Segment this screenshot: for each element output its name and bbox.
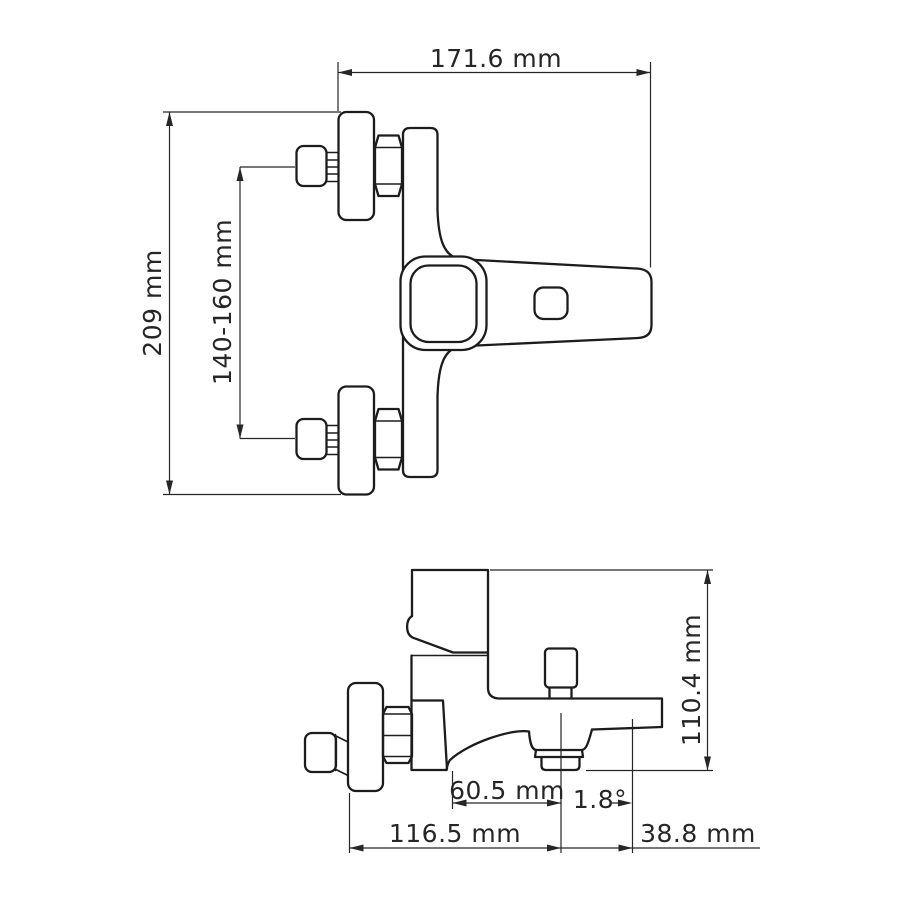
- handle-button: [535, 288, 568, 320]
- arrowhead: [338, 69, 352, 76]
- side-view: 110.4 mm 60.5 mm 1.8° 116.5 mm 38.8 mm: [305, 570, 760, 853]
- diverter-neck: [550, 688, 572, 699]
- spout-tip-bottom: [592, 727, 662, 730]
- thread-lines: [327, 433, 339, 447]
- arrowhead: [704, 570, 711, 584]
- arrowhead: [166, 481, 173, 495]
- dim-label-front-height: 209 mm: [138, 249, 167, 356]
- front-view: 171.6 mm 209 mm 140-160 mm: [138, 44, 652, 495]
- hex-nut-facets: [375, 148, 402, 185]
- escutcheon: [339, 112, 375, 220]
- arrowhead: [619, 845, 633, 852]
- ext-lines-height: [163, 112, 341, 495]
- arrowhead: [704, 757, 711, 771]
- front-body: [401, 128, 652, 477]
- ext-lines-mount-spacing: [240, 167, 295, 439]
- eccentric-cylinder: [297, 419, 327, 459]
- escutcheon: [339, 387, 375, 495]
- arrowhead: [166, 112, 173, 126]
- dim-label-side-height: 110.4 mm: [677, 614, 706, 746]
- front-bottom-mount: [297, 387, 403, 495]
- drawing-canvas: 171.6 mm 209 mm 140-160 mm: [0, 0, 900, 900]
- dim-label-spout-offset: 60.5 mm: [449, 776, 565, 805]
- front-top-mount: [297, 112, 403, 220]
- faucet-dimension-drawing: 171.6 mm 209 mm 140-160 mm: [0, 0, 900, 900]
- control-knob-outer: [401, 257, 487, 351]
- eccentric-cylinder: [297, 146, 327, 186]
- escutcheon: [348, 683, 383, 791]
- dim-label-mount-spacing: 140-160 mm: [208, 219, 237, 385]
- arrowhead: [237, 167, 244, 181]
- eccentric-connector: [305, 733, 336, 772]
- body-lower-left: [412, 656, 447, 771]
- arrowhead: [350, 845, 364, 852]
- hex-nut: [375, 409, 402, 470]
- side-body: [407, 570, 662, 770]
- lever-side: [407, 616, 488, 653]
- hex-nut-facets: [375, 421, 402, 458]
- arrowhead: [237, 425, 244, 439]
- spout-underside: [447, 730, 593, 771]
- side-wall-mount: [305, 683, 412, 791]
- perspective-lines: [336, 736, 348, 776]
- dim-label-front-width: 171.6 mm: [430, 44, 562, 73]
- hex-nut-facets: [383, 714, 412, 757]
- body-outline: [412, 570, 662, 727]
- front-dimensions: 171.6 mm 209 mm 140-160 mm: [138, 44, 651, 495]
- dim-label-spout-angle: 1.8°: [573, 785, 627, 814]
- connection-piece: [412, 701, 448, 770]
- ext-lines-width: [338, 62, 651, 268]
- arrowhead: [547, 845, 561, 852]
- dim-label-tip-length: 38.8 mm: [640, 819, 756, 848]
- dim-label-depth: 116.5 mm: [389, 819, 521, 848]
- arrowhead: [637, 69, 651, 76]
- diverter-knob: [545, 649, 577, 688]
- thread-lines: [327, 160, 339, 174]
- hex-nut: [375, 136, 402, 197]
